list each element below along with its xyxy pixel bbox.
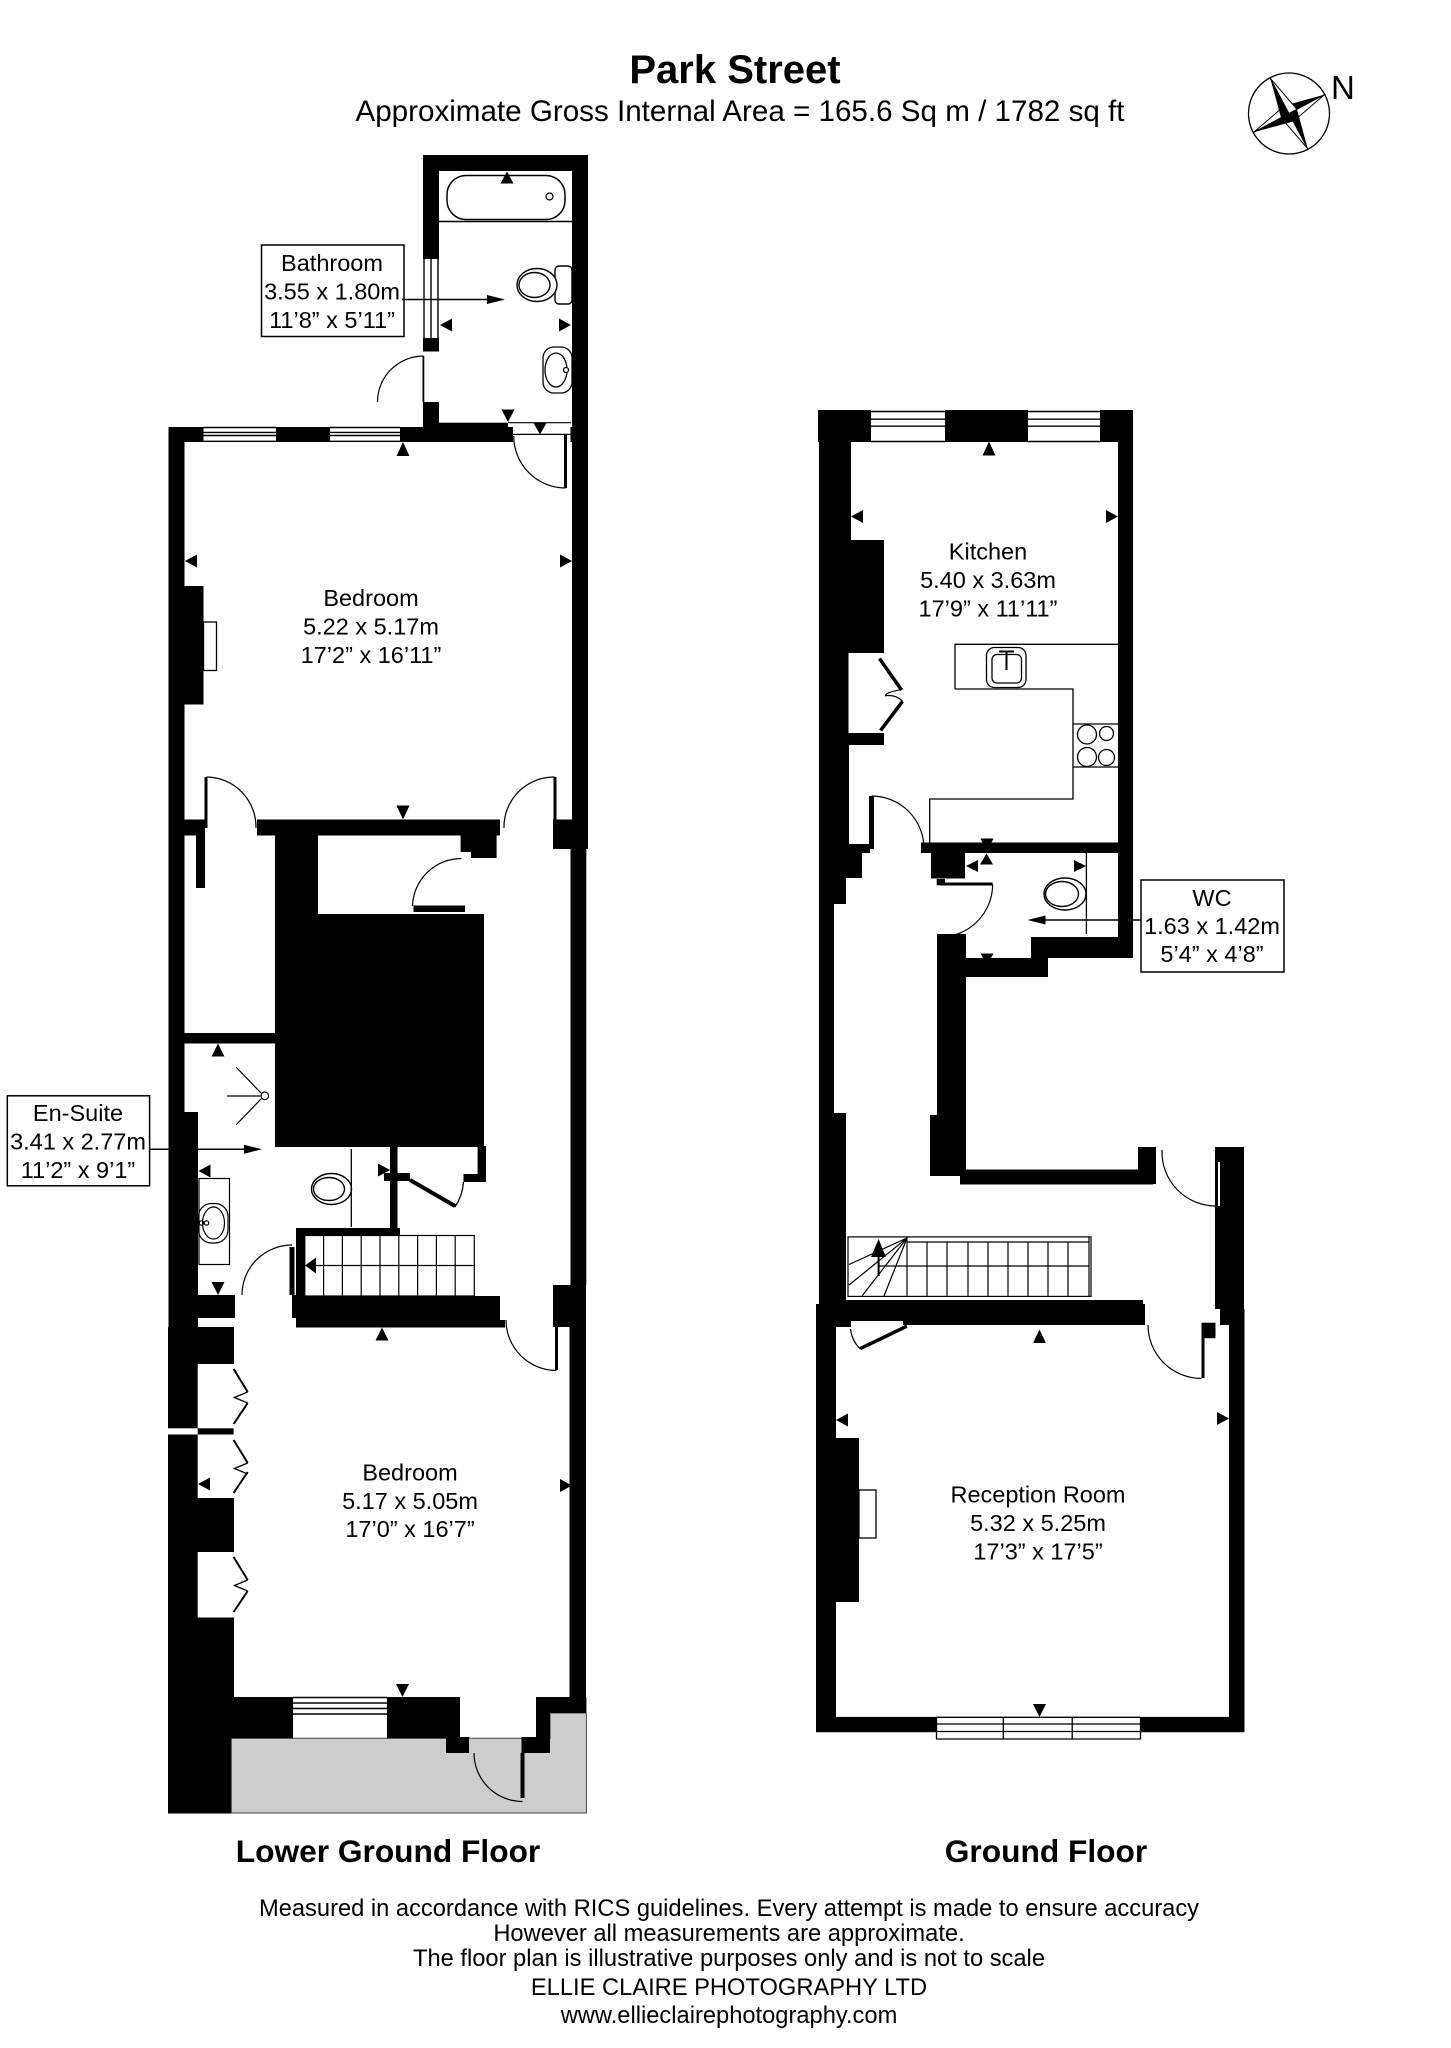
svg-text:Bedroom: Bedroom [362,1460,457,1486]
svg-text:Kitchen: Kitchen [949,539,1027,565]
svg-text:11’8” x 5’11”: 11’8” x 5’11” [269,307,395,333]
svg-text:Measured in accordance with RI: Measured in accordance with RICS guideli… [259,1896,1199,1922]
svg-text:5’4” x 4’8”: 5’4” x 4’8” [1160,941,1263,967]
svg-text:5.17 x 5.05m: 5.17 x 5.05m [342,1488,478,1514]
svg-text:1.63 x 1.42m: 1.63 x 1.42m [1144,913,1280,939]
svg-text:17’9” x 11’11”: 17’9” x 11’11” [919,596,1058,622]
svg-text:Park Street: Park Street [629,48,840,92]
svg-text:5.22 x 5.17m: 5.22 x 5.17m [303,614,439,640]
svg-text:The floor plan is illustrative: The floor plan is illustrative purposes … [413,1946,1045,1972]
svg-text:Approximate Gross Internal Are: Approximate Gross Internal Area = 165.6 … [355,95,1124,128]
svg-text:www.ellieclairephotography.com: www.ellieclairephotography.com [560,2003,898,2029]
svg-text:Ground Floor: Ground Floor [945,1833,1147,1869]
svg-text:5.40 x 3.63m: 5.40 x 3.63m [920,567,1056,593]
svg-text:Bathroom: Bathroom [281,250,383,276]
svg-text:17’0” x 16’7”: 17’0” x 16’7” [345,1516,474,1542]
svg-text:WC: WC [1192,885,1231,911]
svg-text:Reception Room: Reception Room [950,1482,1125,1508]
svg-text:3.41 x 2.77m: 3.41 x 2.77m [10,1129,146,1155]
svg-text:17’2” x 16’11”: 17’2” x 16’11” [301,642,442,668]
svg-text:However all measurements are a: However all measurements are approximate… [493,1921,964,1947]
svg-text:Lower Ground Floor: Lower Ground Floor [236,1833,541,1869]
svg-text:En-Suite: En-Suite [33,1100,123,1126]
svg-text:Bedroom: Bedroom [323,585,418,611]
svg-text:11’2” x 9’1”: 11’2” x 9’1” [21,1157,136,1183]
svg-text:N: N [1331,69,1355,106]
svg-text:17’3” x 17’5”: 17’3” x 17’5” [973,1539,1102,1565]
svg-text:5.32 x 5.25m: 5.32 x 5.25m [970,1510,1106,1536]
svg-text:3.55 x 1.80m: 3.55 x 1.80m [264,279,400,305]
svg-text:ELLIE CLAIRE PHOTOGRAPHY LTD: ELLIE CLAIRE PHOTOGRAPHY LTD [531,1975,927,2001]
